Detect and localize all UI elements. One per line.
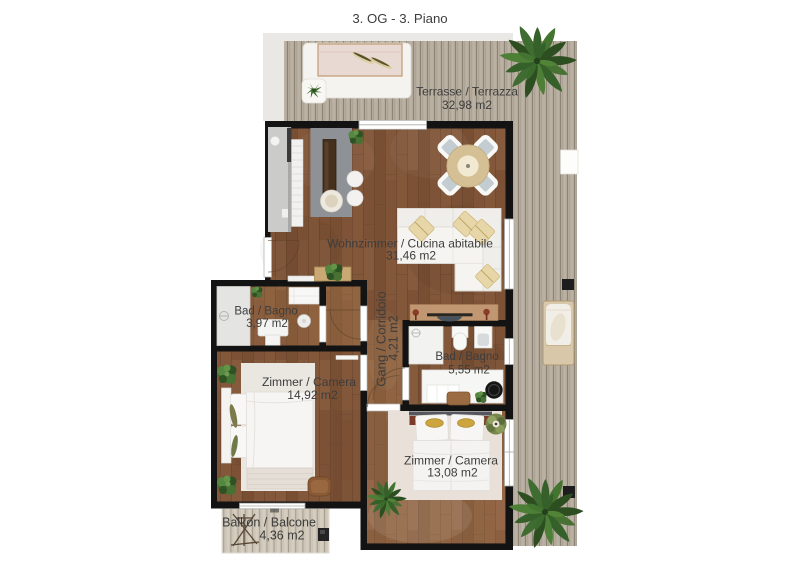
svg-text:31,46 m2: 31,46 m2 xyxy=(386,249,436,263)
svg-text:32,98 m2: 32,98 m2 xyxy=(442,98,492,112)
svg-text:Bad / Bagno: Bad / Bagno xyxy=(234,306,297,318)
svg-text:13,08 m2: 13,08 m2 xyxy=(427,466,478,480)
svg-text:Terrasse / Terrazza: Terrasse / Terrazza xyxy=(416,85,518,99)
svg-text:3,97 m2: 3,97 m2 xyxy=(246,318,288,330)
svg-text:Zimmer / Camera: Zimmer / Camera xyxy=(262,375,356,389)
svg-text:5,55 m2: 5,55 m2 xyxy=(448,365,490,377)
svg-text:4,21 m2: 4,21 m2 xyxy=(387,315,401,360)
svg-text:14,92 m2: 14,92 m2 xyxy=(287,388,338,402)
svg-text:3. OG - 3. Piano: 3. OG - 3. Piano xyxy=(352,11,447,26)
svg-text:Bad / Bagno: Bad / Bagno xyxy=(435,351,498,363)
svg-text:Balkon / Balcone: Balkon / Balcone xyxy=(222,516,316,530)
svg-text:4,36 m2: 4,36 m2 xyxy=(259,529,304,543)
